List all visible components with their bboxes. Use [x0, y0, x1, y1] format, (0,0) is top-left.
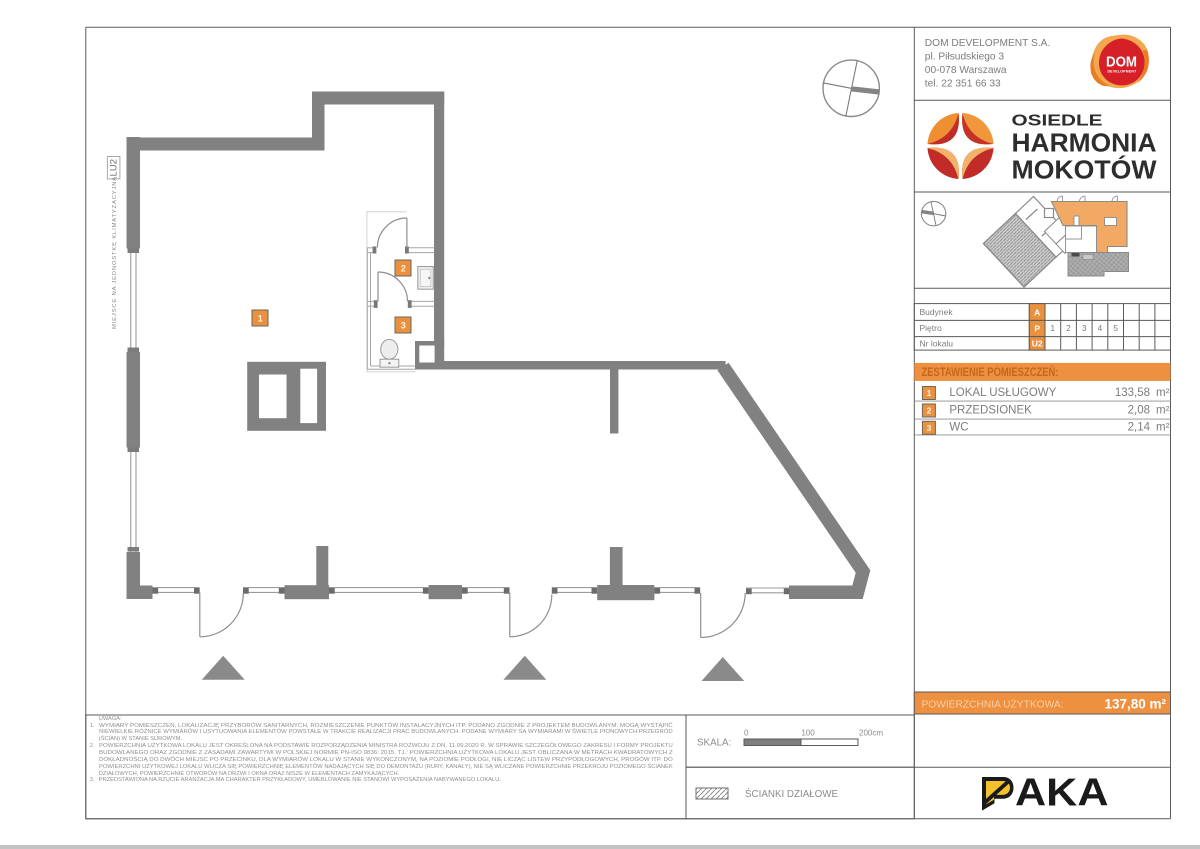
svg-text:ŚCIANKI DZIAŁOWE: ŚCIANKI DZIAŁOWE — [745, 788, 839, 800]
svg-text:0: 0 — [744, 729, 749, 738]
svg-text:SKALA:: SKALA: — [697, 738, 731, 749]
svg-text:200cm: 200cm — [859, 729, 883, 738]
svg-text:100: 100 — [801, 729, 815, 738]
